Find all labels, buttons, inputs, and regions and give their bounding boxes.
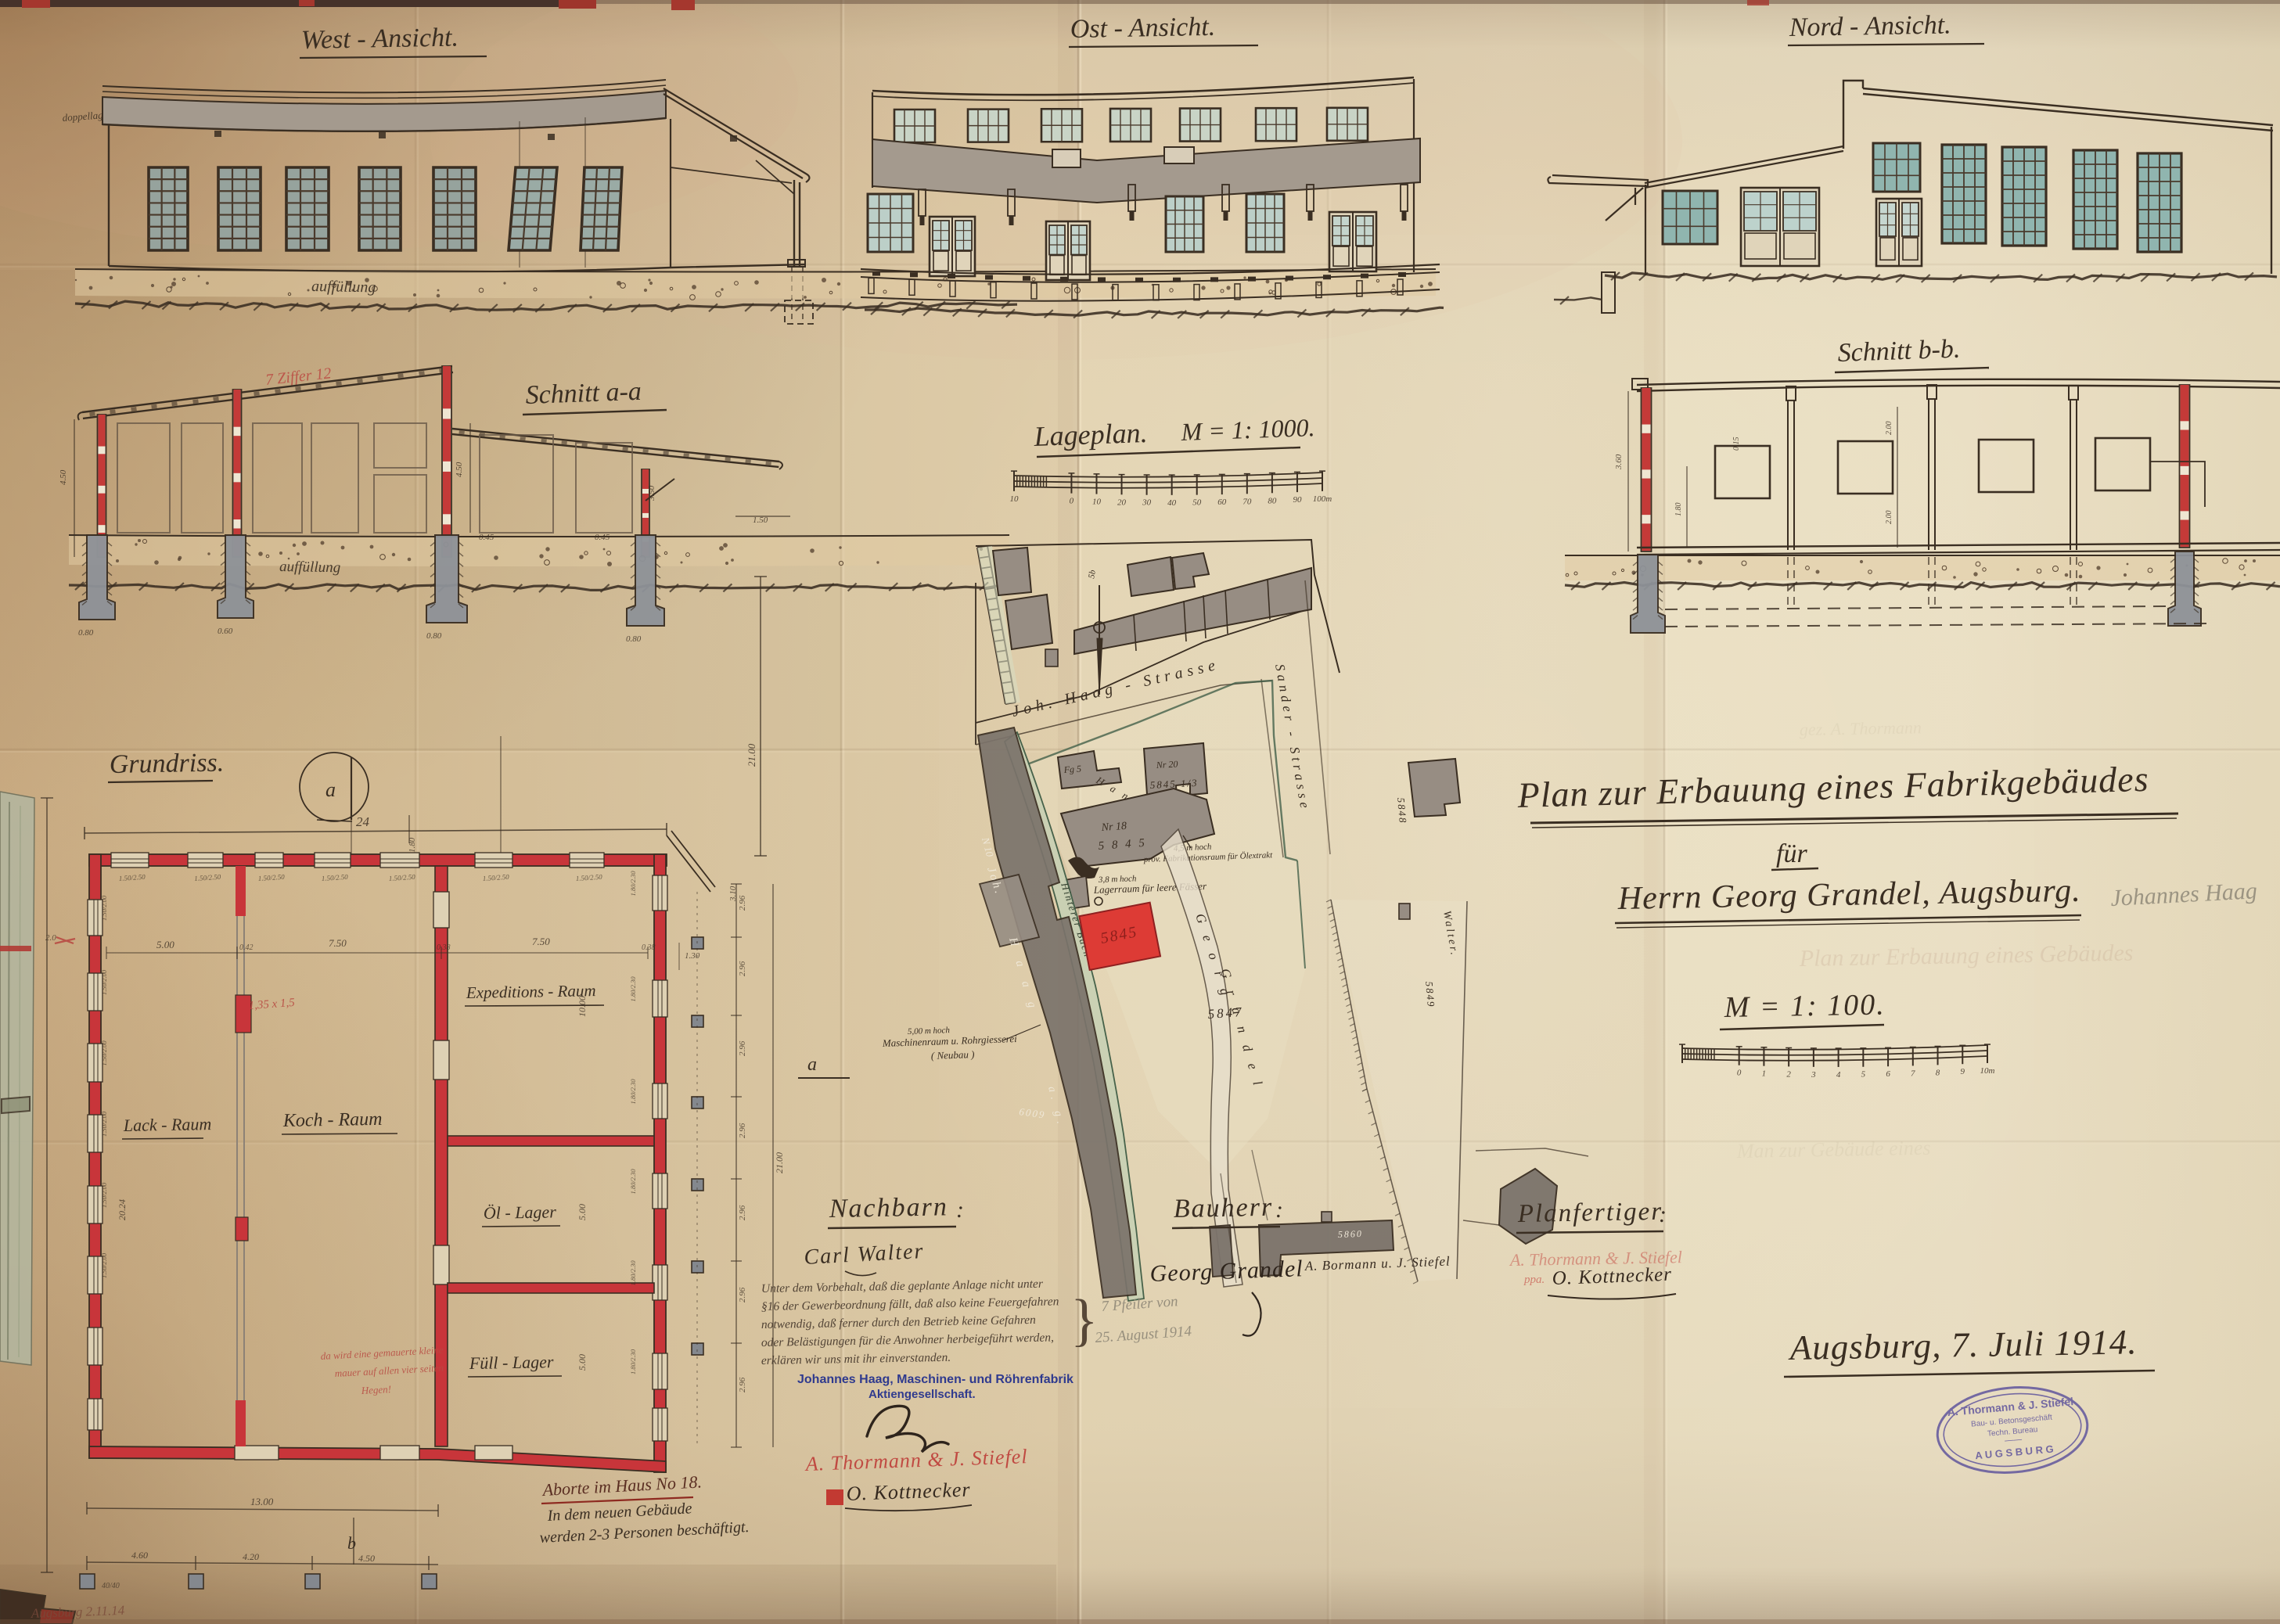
svg-text:50: 50 bbox=[1192, 498, 1202, 508]
svg-text:Öl - Lager: Öl - Lager bbox=[484, 1202, 557, 1223]
svg-text:M = 1: 1000.: M = 1: 1000. bbox=[1180, 413, 1315, 446]
svg-text:( Neubau ): ( Neubau ) bbox=[931, 1048, 975, 1062]
svg-text:5.00: 5.00 bbox=[577, 1354, 588, 1371]
svg-text:1.80/2.30: 1.80/2.30 bbox=[629, 1169, 637, 1195]
svg-text:1.30: 1.30 bbox=[685, 951, 700, 961]
svg-text:1: 1 bbox=[1762, 1069, 1767, 1079]
svg-text:10m: 10m bbox=[1980, 1066, 1995, 1076]
svg-text:Schnitt b-b.: Schnitt b-b. bbox=[1837, 335, 1961, 368]
svg-text:Koch - Raum: Koch - Raum bbox=[282, 1109, 383, 1131]
svg-text:1.80/2.30: 1.80/2.30 bbox=[629, 1349, 637, 1374]
svg-text:0: 0 bbox=[1070, 497, 1074, 506]
svg-text:5849: 5849 bbox=[1423, 981, 1437, 1008]
svg-text:24: 24 bbox=[356, 814, 370, 829]
svg-text:0.15: 0.15 bbox=[1732, 437, 1741, 451]
svg-text:auffüllung: auffüllung bbox=[311, 278, 376, 296]
svg-text:8: 8 bbox=[1936, 1068, 1940, 1077]
svg-text:2.00: 2.00 bbox=[1885, 422, 1893, 436]
svg-text:2.96: 2.96 bbox=[738, 961, 747, 976]
svg-text:Aktiengesellschaft.: Aktiengesellschaft. bbox=[868, 1388, 976, 1401]
svg-text:0.45: 0.45 bbox=[479, 533, 494, 542]
svg-text:Johannes Haag, Maschinen- und: Johannes Haag, Maschinen- und Röhrenfabr… bbox=[797, 1373, 1073, 1386]
svg-text:Bauherr: Bauherr bbox=[1173, 1193, 1273, 1223]
svg-text:21.00: 21.00 bbox=[774, 1152, 785, 1173]
svg-text:10: 10 bbox=[1010, 494, 1020, 504]
svg-text:Fg 5: Fg 5 bbox=[1063, 763, 1081, 775]
svg-text:90: 90 bbox=[1293, 495, 1302, 505]
svg-text:b: b bbox=[347, 1533, 356, 1553]
svg-text:60: 60 bbox=[1217, 498, 1227, 507]
svg-text:7.50: 7.50 bbox=[532, 936, 550, 947]
svg-text:Füll - Lager: Füll - Lager bbox=[469, 1352, 554, 1373]
svg-text:Planfertiger: Planfertiger bbox=[1517, 1198, 1663, 1228]
svg-text:a: a bbox=[807, 1055, 817, 1075]
svg-text:9: 9 bbox=[1961, 1067, 1965, 1076]
svg-text::: : bbox=[1275, 1197, 1283, 1223]
svg-text:80: 80 bbox=[1268, 496, 1277, 505]
svg-text:5.00: 5.00 bbox=[577, 1204, 588, 1220]
svg-text:auffüllung: auffüllung bbox=[279, 559, 340, 576]
svg-text:0.60: 0.60 bbox=[218, 627, 233, 636]
svg-text:ppa.: ppa. bbox=[1523, 1274, 1545, 1286]
svg-text:10.00: 10.00 bbox=[577, 996, 588, 1017]
svg-text:2.96: 2.96 bbox=[738, 1040, 747, 1056]
svg-text:1.80/2.30: 1.80/2.30 bbox=[629, 976, 637, 1002]
svg-text:0.80: 0.80 bbox=[426, 631, 442, 641]
svg-text:Man zur Gebäude eines: Man zur Gebäude eines bbox=[1736, 1137, 1931, 1162]
svg-text:1.50/2.00: 1.50/2.00 bbox=[100, 969, 108, 995]
svg-text:5847: 5847 bbox=[1207, 1004, 1244, 1022]
svg-text:Nachbarn: Nachbarn bbox=[828, 1192, 948, 1223]
svg-text:20.24: 20.24 bbox=[117, 1199, 128, 1220]
svg-text:100m: 100m bbox=[1313, 494, 1332, 504]
svg-text:7: 7 bbox=[1911, 1069, 1915, 1078]
svg-text:3.50: 3.50 bbox=[647, 485, 656, 501]
svg-text:1.50/2.00: 1.50/2.00 bbox=[100, 1111, 108, 1137]
svg-text:1.50/2.00: 1.50/2.00 bbox=[100, 1252, 108, 1278]
svg-text:a: a bbox=[325, 778, 336, 801]
svg-text:M = 1: 100.: M = 1: 100. bbox=[1723, 988, 1886, 1024]
svg-text:4.50: 4.50 bbox=[455, 462, 464, 477]
svg-text:5: 5 bbox=[1861, 1070, 1866, 1080]
svg-text:0.38: 0.38 bbox=[437, 943, 451, 952]
svg-text:1.80: 1.80 bbox=[1674, 503, 1683, 517]
svg-text:Schnitt a-a: Schnitt a-a bbox=[525, 377, 642, 410]
svg-text:}: } bbox=[1070, 1288, 1099, 1353]
svg-text:Grundriss.: Grundriss. bbox=[109, 748, 224, 779]
svg-text:Nr 18: Nr 18 bbox=[1100, 821, 1127, 834]
svg-text:0.80: 0.80 bbox=[626, 634, 642, 644]
svg-text:1.80/2.30: 1.80/2.30 bbox=[629, 1079, 637, 1105]
svg-text:4: 4 bbox=[1836, 1070, 1841, 1080]
svg-text:4.60: 4.60 bbox=[131, 1550, 148, 1561]
svg-text:2.96: 2.96 bbox=[738, 895, 747, 911]
svg-text:3.60: 3.60 bbox=[1614, 454, 1624, 470]
svg-text:20: 20 bbox=[1117, 498, 1127, 507]
svg-text:6: 6 bbox=[1886, 1069, 1890, 1079]
svg-text:1.80: 1.80 bbox=[408, 837, 417, 853]
svg-text:70: 70 bbox=[1242, 497, 1252, 506]
svg-text:4.50: 4.50 bbox=[59, 469, 68, 485]
svg-text:1.50/2.00: 1.50/2.00 bbox=[100, 1182, 108, 1208]
svg-text:Augsburg, 7. Juli 1914.: Augsburg, 7. Juli 1914. bbox=[1787, 1322, 2138, 1367]
svg-text:30: 30 bbox=[1142, 498, 1152, 508]
svg-text:West - Ansicht.: West - Ansicht. bbox=[300, 23, 459, 55]
svg-text:0.38: 0.38 bbox=[642, 943, 656, 952]
svg-text:1.50/2.00: 1.50/2.00 bbox=[100, 1040, 108, 1066]
svg-text:O. Kottnecker: O. Kottnecker bbox=[846, 1478, 971, 1505]
svg-text:Lageplan.: Lageplan. bbox=[1033, 417, 1148, 452]
svg-text:Hegen!: Hegen! bbox=[360, 1383, 391, 1396]
svg-text:für: für bbox=[1776, 839, 1807, 868]
svg-text:——: —— bbox=[2005, 1435, 2023, 1446]
svg-text:gez. A. Thormann: gez. A. Thormann bbox=[1800, 717, 1922, 739]
svg-text:2: 2 bbox=[1786, 1069, 1791, 1079]
svg-text:4.50: 4.50 bbox=[358, 1553, 375, 1564]
svg-text:3.10: 3.10 bbox=[728, 886, 738, 902]
svg-text:2.96: 2.96 bbox=[738, 1205, 747, 1220]
svg-text:7.50: 7.50 bbox=[329, 937, 347, 949]
svg-text::: : bbox=[956, 1197, 964, 1223]
svg-text:0: 0 bbox=[1737, 1069, 1742, 1078]
svg-text:Nord - Ansicht.: Nord - Ansicht. bbox=[1788, 10, 1951, 42]
svg-text:Nr 20: Nr 20 bbox=[1155, 759, 1178, 771]
svg-text:1.50: 1.50 bbox=[753, 516, 768, 525]
svg-text:10: 10 bbox=[1092, 498, 1102, 507]
svg-text:1.50/2.00: 1.50/2.00 bbox=[100, 895, 108, 921]
svg-text:2.96: 2.96 bbox=[738, 1287, 747, 1302]
svg-text:40/40: 40/40 bbox=[102, 1582, 120, 1590]
svg-text:Lack - Raum: Lack - Raum bbox=[123, 1114, 212, 1135]
svg-text::: : bbox=[1659, 1202, 1667, 1227]
svg-text:2.00: 2.00 bbox=[1885, 511, 1893, 525]
svg-text:5860: 5860 bbox=[1338, 1228, 1363, 1240]
svg-text:13.00: 13.00 bbox=[250, 1496, 274, 1507]
svg-text:3: 3 bbox=[1811, 1070, 1816, 1080]
svg-text:21.00: 21.00 bbox=[746, 743, 757, 767]
svg-text:0.42: 0.42 bbox=[239, 943, 254, 952]
svg-text:Ost - Ansicht.: Ost - Ansicht. bbox=[1070, 13, 1215, 44]
svg-text:1.80/2.30: 1.80/2.30 bbox=[629, 1260, 637, 1286]
svg-text:1.80/2.30: 1.80/2.30 bbox=[629, 871, 637, 896]
svg-text:5848: 5848 bbox=[1395, 797, 1409, 825]
svg-text:O. Kottnecker: O. Kottnecker bbox=[1552, 1264, 1672, 1289]
svg-text:2.96: 2.96 bbox=[738, 1377, 747, 1392]
svg-text:0.45: 0.45 bbox=[595, 533, 610, 542]
svg-text:0.80: 0.80 bbox=[78, 628, 94, 638]
svg-text:2.96: 2.96 bbox=[738, 1123, 747, 1138]
svg-text:5.00: 5.00 bbox=[156, 939, 174, 950]
svg-text:40: 40 bbox=[1167, 498, 1177, 508]
svg-text:2.0: 2.0 bbox=[45, 933, 56, 943]
svg-text:Georg Grandel: Georg Grandel bbox=[1149, 1256, 1304, 1287]
svg-text:4.20: 4.20 bbox=[243, 1551, 259, 1562]
